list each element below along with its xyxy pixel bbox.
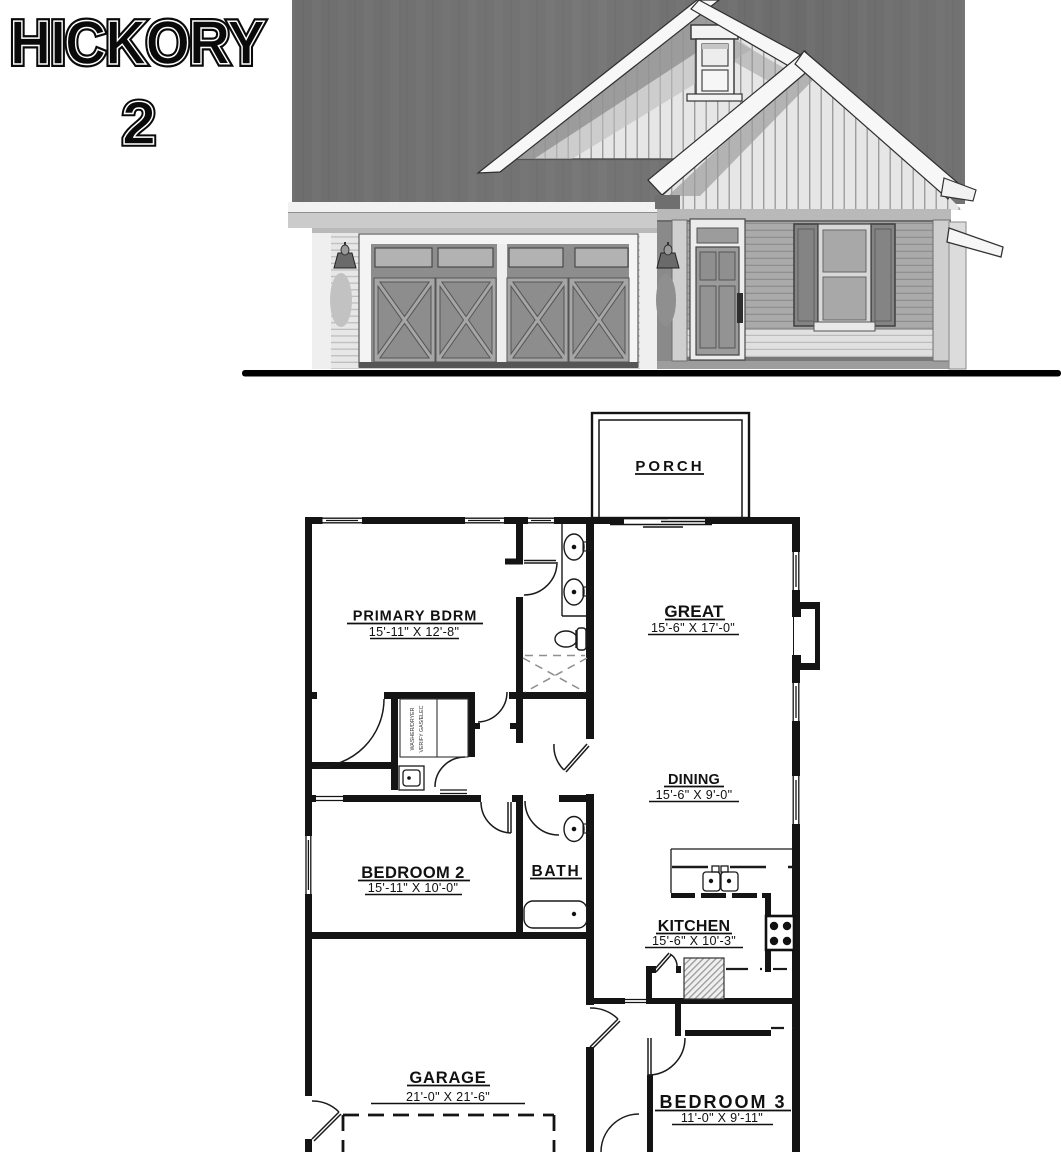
svg-text:BEDROOM 2: BEDROOM 2: [361, 864, 465, 882]
svg-text:BEDROOM 3: BEDROOM 3: [659, 1092, 786, 1112]
svg-text:BATH: BATH: [531, 863, 580, 880]
svg-text:11'-0" X 9'-11": 11'-0" X 9'-11": [681, 1111, 763, 1125]
svg-text:GARAGE: GARAGE: [409, 1069, 486, 1087]
svg-text:15'-6" X 17'-0": 15'-6" X 17'-0": [651, 621, 735, 635]
svg-text:GREAT: GREAT: [664, 602, 724, 621]
svg-text:DINING: DINING: [668, 772, 720, 788]
svg-text:15'-6" X 10'-3": 15'-6" X 10'-3": [652, 934, 736, 948]
svg-text:PORCH: PORCH: [635, 458, 704, 475]
svg-text:15'-6" X 9'-0": 15'-6" X 9'-0": [656, 788, 733, 802]
svg-text:2: 2: [122, 89, 156, 157]
svg-text:15'-11" X 10'-0": 15'-11" X 10'-0": [368, 881, 458, 895]
svg-text:PRIMARY BDRM: PRIMARY BDRM: [353, 609, 477, 625]
svg-text:21'-0" X 21'-6": 21'-0" X 21'-6": [406, 1090, 490, 1104]
svg-text:15'-11" X 12'-8": 15'-11" X 12'-8": [369, 625, 459, 639]
svg-text:KITCHEN: KITCHEN: [658, 918, 731, 935]
svg-text:VERIFY GAS/ELEC: VERIFY GAS/ELEC: [419, 705, 425, 752]
svg-text:WASHER/DRYER: WASHER/DRYER: [410, 707, 416, 750]
svg-text:HICKORY: HICKORY: [10, 8, 265, 78]
